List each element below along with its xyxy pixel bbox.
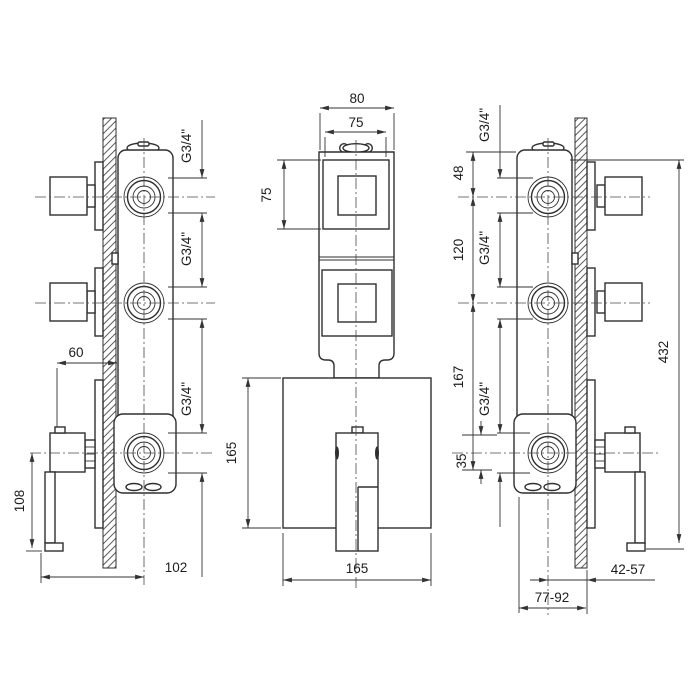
right-side-view: 48 120 167 35 G3/4" G3/4" G3/4" 432 42-5… xyxy=(451,105,684,615)
dim-depth: 102 xyxy=(165,560,188,575)
escutcheon-plate xyxy=(587,380,595,528)
mixer-valve-drawing: 60 108 102 G3/4" G3/4" G3/4" xyxy=(0,0,700,700)
dim-handle-offset: 60 xyxy=(68,345,83,360)
dim-wall-depth-range: 42-57 xyxy=(611,562,646,577)
escutcheon-plate xyxy=(95,162,103,230)
dim-lower-spacing: 167 xyxy=(451,366,466,389)
mounting-foot xyxy=(525,484,541,491)
dim-plate-width: 165 xyxy=(346,561,369,576)
knob-stem xyxy=(597,185,605,207)
dim-total-height: 432 xyxy=(656,341,671,364)
dim-thread-mid: G3/4" xyxy=(179,232,194,266)
knob-stem xyxy=(597,291,605,313)
knob xyxy=(50,177,87,215)
knob xyxy=(605,177,642,215)
dim-port-height: 35 xyxy=(454,453,469,468)
valve-module xyxy=(514,414,576,493)
dim-top-offset: 48 xyxy=(451,165,466,180)
left-side-view: 60 108 102 G3/4" G3/4" G3/4" xyxy=(12,118,215,585)
lever-blade xyxy=(635,472,645,543)
lever-pin xyxy=(352,427,363,433)
mounting-foot xyxy=(126,484,142,491)
dim-thread-bottom: G3/4" xyxy=(179,382,194,416)
mounting-foot xyxy=(145,484,161,491)
lever-foot xyxy=(627,543,645,551)
dim-lever-length: 108 xyxy=(12,490,27,513)
knob-stem xyxy=(87,291,95,313)
body-notch xyxy=(112,253,118,264)
lever-pin xyxy=(625,427,635,433)
escutcheon-plate xyxy=(95,380,103,528)
front-view: 80 75 75 165 165 xyxy=(224,91,431,590)
dim-port-spacing: 120 xyxy=(451,239,466,262)
dim-body-width: 80 xyxy=(349,91,364,106)
lever-pivot xyxy=(375,447,379,460)
dim-thread-mid: G3/4" xyxy=(477,231,492,265)
wall-hatch xyxy=(575,118,587,568)
dim-knob-width: 75 xyxy=(348,115,363,130)
dim-plate-height: 165 xyxy=(224,442,239,465)
mounting-foot xyxy=(544,484,560,491)
body-notch xyxy=(572,253,578,264)
lever-foot xyxy=(45,543,63,551)
lever-base xyxy=(605,433,640,472)
lever-handle xyxy=(336,433,378,551)
lever-base xyxy=(50,433,85,472)
escutcheon-plate xyxy=(95,268,103,336)
lever-pivot xyxy=(335,447,339,460)
dim-thread-bottom: G3/4" xyxy=(477,382,492,416)
knob xyxy=(605,283,642,321)
lever-pin xyxy=(55,427,65,433)
dim-thread-top: G3/4" xyxy=(477,108,492,142)
wall-hatch xyxy=(103,118,116,568)
square-knob-inner xyxy=(338,176,376,215)
dim-thread-top: G3/4" xyxy=(179,129,194,163)
lever-blade xyxy=(45,472,55,543)
escutcheon-plate xyxy=(587,268,595,336)
square-knob-inner xyxy=(338,284,376,322)
knob-stem xyxy=(87,185,95,207)
knob xyxy=(50,283,87,321)
dim-knob-height: 75 xyxy=(259,187,274,202)
dim-install-depth-range: 77-92 xyxy=(535,590,570,605)
valve-module xyxy=(114,414,176,493)
escutcheon-plate xyxy=(587,162,595,230)
technical-drawing-page: 60 108 102 G3/4" G3/4" G3/4" xyxy=(0,0,700,700)
